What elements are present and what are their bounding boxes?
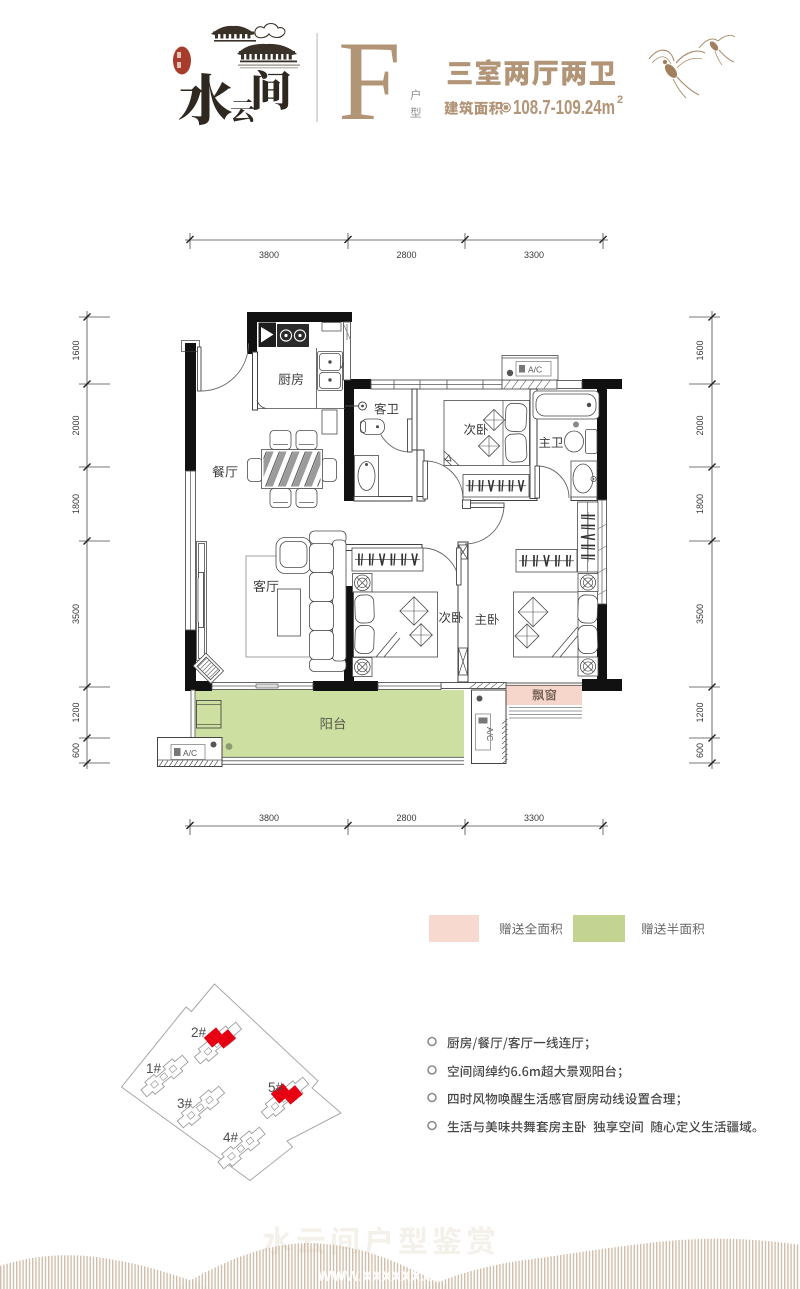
svg-text:3500: 3500 [71, 604, 81, 624]
svg-text:2: 2 [617, 94, 623, 106]
svg-text:1800: 1800 [695, 494, 705, 514]
svg-text:3#: 3# [177, 1096, 193, 1111]
svg-text:108.7-109.24m: 108.7-109.24m [513, 97, 615, 119]
svg-text:2000: 2000 [695, 415, 705, 435]
svg-text:3500: 3500 [695, 604, 705, 624]
svg-text:3800: 3800 [259, 250, 279, 260]
svg-text:600: 600 [71, 743, 81, 758]
svg-text:2000: 2000 [71, 415, 81, 435]
svg-text:1#: 1# [146, 1061, 162, 1076]
svg-text:3300: 3300 [524, 813, 544, 823]
svg-text:3300: 3300 [524, 250, 544, 260]
svg-text:F: F [338, 19, 401, 144]
svg-text:1200: 1200 [695, 702, 705, 722]
svg-text:1200: 1200 [71, 702, 81, 722]
svg-text:600: 600 [695, 743, 705, 758]
svg-text:A/C: A/C [528, 365, 542, 375]
svg-text:A/C: A/C [183, 748, 197, 758]
svg-text:A/C: A/C [485, 727, 495, 741]
svg-text:2#: 2# [191, 1025, 207, 1040]
svg-text:1800: 1800 [71, 494, 81, 514]
svg-text:4#: 4# [223, 1130, 239, 1145]
svg-text:1600: 1600 [695, 340, 705, 360]
svg-text:3800: 3800 [259, 813, 279, 823]
svg-text:1600: 1600 [71, 340, 81, 360]
svg-text:2800: 2800 [396, 250, 416, 260]
svg-text:2800: 2800 [396, 813, 416, 823]
svg-text:WWW.XXXXXX.CN: WWW.XXXXXX.CN [318, 1269, 445, 1285]
svg-text:5#: 5# [268, 1080, 284, 1095]
